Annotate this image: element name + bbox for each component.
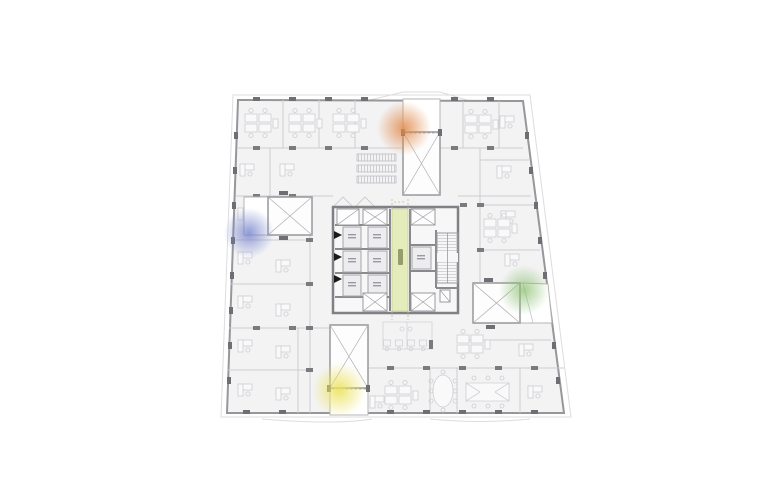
west-shaft-marker[interactable]	[224, 208, 274, 258]
east-shaft-marker[interactable]	[499, 265, 549, 315]
pantry-cabinet	[429, 340, 433, 349]
floor-plan-page	[0, 0, 780, 488]
building-core	[333, 199, 458, 320]
core-stair	[437, 233, 458, 283]
floor-plan-svg	[0, 0, 780, 488]
corridor-label-smudge	[398, 249, 403, 265]
south-shaft-marker[interactable]	[312, 363, 366, 417]
locker-rows	[357, 154, 396, 183]
north-shaft-marker[interactable]	[377, 101, 431, 155]
